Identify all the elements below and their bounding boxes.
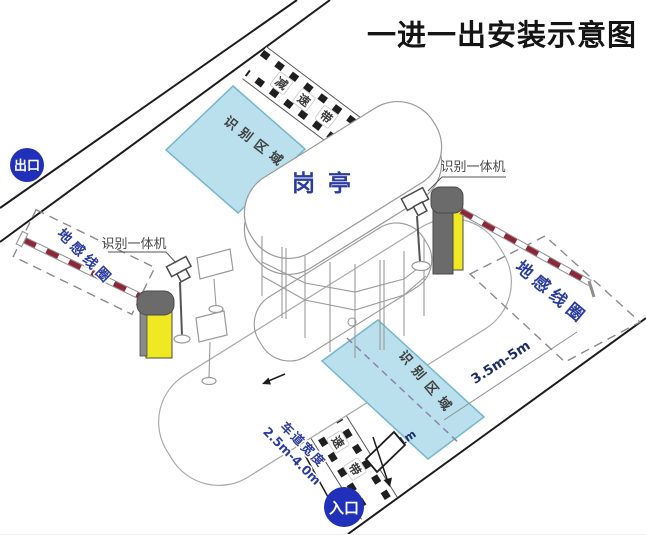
booth-label: 岗亭 — [292, 170, 364, 197]
entrance-stop-line — [366, 432, 405, 472]
exit-badge-label: 出口 — [14, 158, 40, 174]
reader-exit-pointer — [108, 252, 176, 263]
page-title: 一进一出安装示意图 — [367, 18, 637, 52]
barrier-machine-exit-body — [146, 310, 172, 358]
barrier-machine-entrance-cap — [431, 187, 463, 213]
sign-board-upper — [197, 249, 233, 313]
ground-coil-entrance-label: 地感线圈 — [511, 256, 592, 329]
diagram-svg: 减 速 带 减 速 带 识别区域 识别区域 1m — [0, 0, 646, 534]
entrance-badge: 入口 — [324, 487, 364, 527]
coil-distance-line — [444, 332, 577, 420]
exit-badge: 出口 — [10, 148, 44, 182]
entrance-badge-label: 入口 — [329, 499, 359, 517]
barrier-arm-entrance-tip — [589, 281, 594, 297]
coil-distance-label: 3.5m-5m — [468, 338, 533, 388]
barrier-machine-entrance-body — [433, 210, 453, 274]
reader-entrance-label: 识别一体机 — [440, 160, 505, 175]
reader-exit-label: 识别一体机 — [101, 237, 166, 252]
barrier-machine-exit-cap — [137, 291, 174, 315]
installation-diagram: 减 速 带 减 速 带 识别区域 识别区域 1m — [0, 0, 646, 535]
